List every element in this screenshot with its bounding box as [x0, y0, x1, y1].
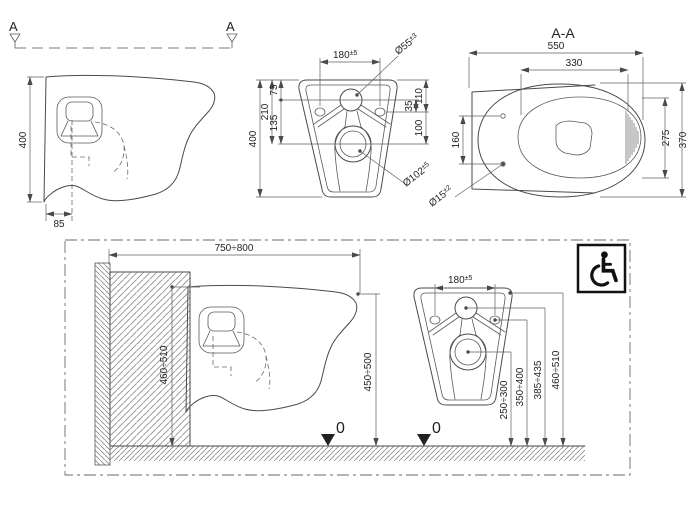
- aa-bowl-width-label: 275: [661, 129, 672, 146]
- side-view: A A 400 85: [9, 19, 237, 230]
- rear-mount-width-label: 180±5: [333, 50, 358, 61]
- section-flag-right-icon: [227, 34, 237, 48]
- frame-height-label: 460÷510: [159, 345, 170, 384]
- rim-height-rear-label: 460÷510: [551, 350, 562, 389]
- dim-75-label: 75: [269, 84, 280, 96]
- wall-section: [95, 263, 110, 465]
- installation-section: 750÷800 460÷510 450÷500 0 180±5 250÷300 …: [65, 240, 630, 475]
- wall-offset-label: 85: [53, 219, 65, 230]
- wheelchair-icon: [578, 245, 625, 292]
- toilet-side-profile-installed: [186, 285, 357, 412]
- section-aa-view: A-A 550 330 160 275 370: [427, 25, 689, 209]
- installation-frame: [110, 272, 190, 446]
- bowl-outer-rim: [478, 84, 645, 197]
- bowl-inner-rim: [518, 97, 641, 178]
- dim-100-label: 100: [414, 119, 425, 136]
- inlet-height-label: 385÷435: [533, 360, 544, 399]
- outlet-height-label: 250÷300: [499, 380, 510, 419]
- aa-hole-dia-label: Ø15±2: [427, 184, 455, 209]
- level-marker-icon: [417, 434, 431, 446]
- rear-height-label: 400: [248, 130, 259, 147]
- level-zero-middle: 0: [432, 420, 441, 437]
- install-mount-width-label: 180±5: [448, 275, 473, 286]
- fixing-hole-top: [501, 114, 505, 118]
- toilet-side-profile: [44, 75, 215, 202]
- toilet-rear-profile-installed: [414, 288, 512, 405]
- dim-210-label: 210: [260, 103, 271, 120]
- water-spot: [556, 121, 592, 155]
- aa-width-label: 370: [678, 131, 689, 148]
- drain-hatch: [626, 111, 638, 164]
- floor-hatch: [110, 446, 585, 461]
- rear-view: 180±5 75 135 210 400 35 110 100 Ø55±3 Ø1…: [248, 32, 433, 197]
- side-height-label: 400: [18, 131, 29, 148]
- section-flag-left-icon: [10, 34, 20, 48]
- install-depth-label: 750÷800: [215, 243, 254, 254]
- aa-bowl-length-label: 330: [566, 58, 583, 69]
- level-zero-left: 0: [336, 420, 345, 437]
- level-marker-icon: [321, 434, 335, 446]
- dim-110-label: 110: [414, 88, 425, 104]
- section-marker-right: A: [226, 19, 235, 34]
- section-marker-left: A: [9, 19, 18, 34]
- hole-height-label: 350÷400: [515, 367, 526, 406]
- aa-length-label: 550: [548, 41, 565, 52]
- rim-height-side-label: 450÷500: [363, 352, 374, 391]
- aa-hole-spacing-label: 160: [451, 131, 462, 148]
- bowl-rear-cut-lines: [472, 85, 595, 193]
- section-title: A-A: [551, 25, 575, 41]
- toilet-installation-drawing: A A 400 85 180±5 75: [0, 0, 700, 510]
- technical-drawing-page: A A 400 85 180±5 75: [0, 0, 700, 510]
- inlet-dia-label: Ø55±3: [393, 32, 421, 57]
- toilet-rear-profile: [299, 80, 397, 197]
- outlet-dia-label: Ø102±5: [401, 161, 433, 190]
